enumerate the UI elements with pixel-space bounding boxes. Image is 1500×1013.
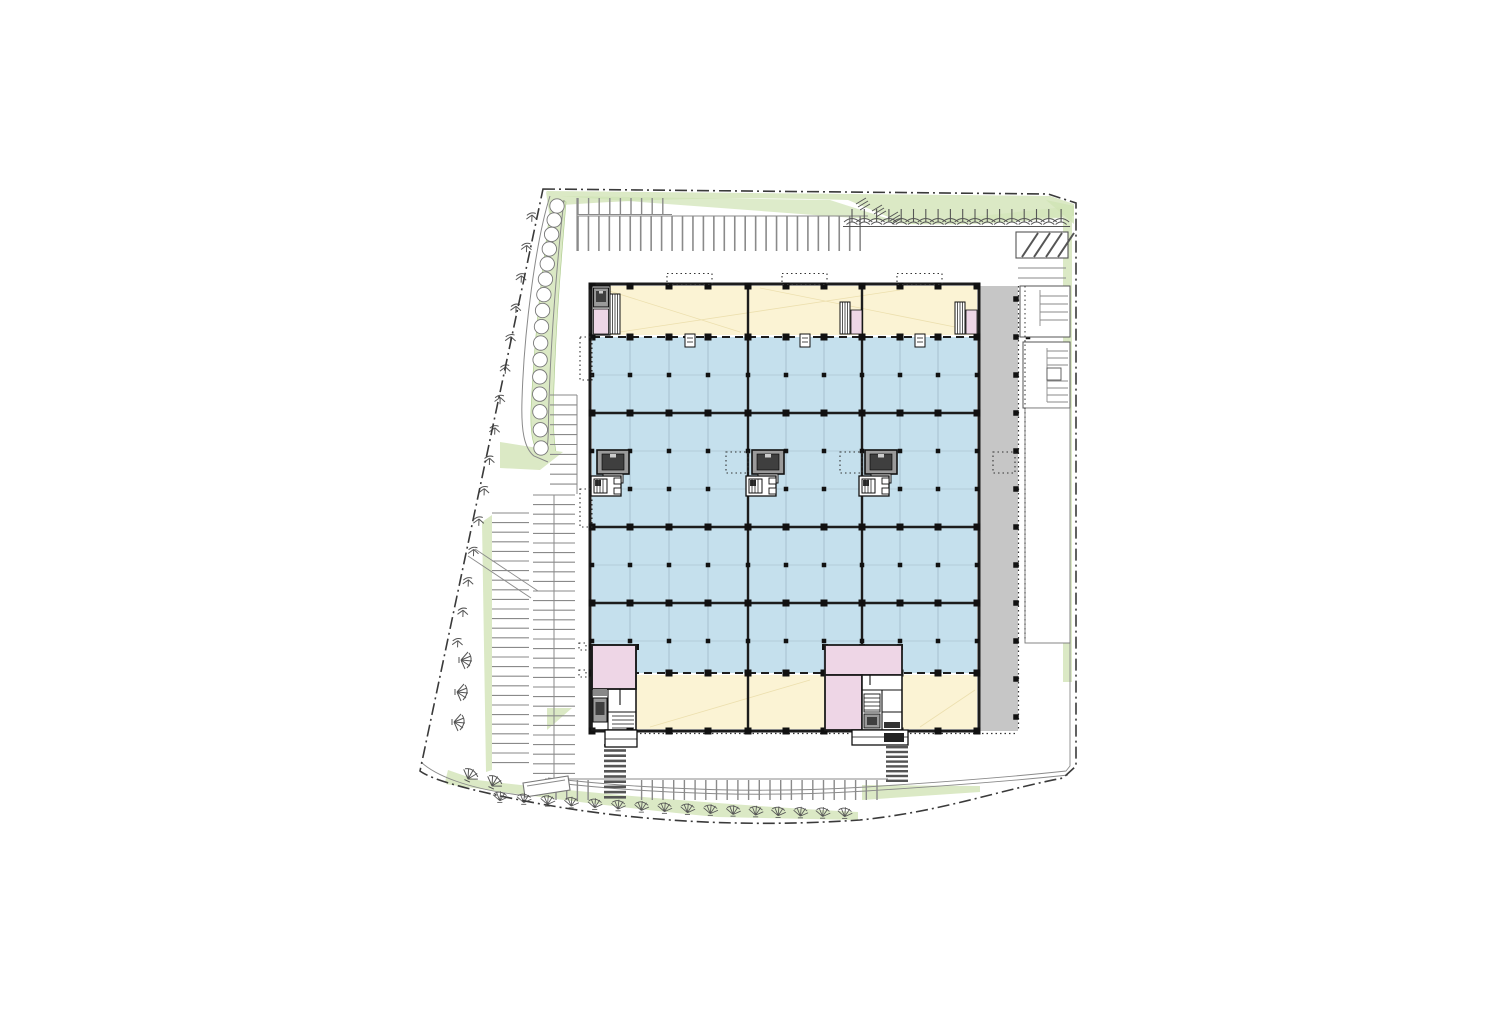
site-plan-page xyxy=(0,0,1500,1013)
core-sw-elev-cab xyxy=(596,702,605,715)
building xyxy=(579,274,1070,748)
east-stair-room-1 xyxy=(1020,286,1070,337)
core-sc-mat xyxy=(884,722,900,728)
crosswalk-west xyxy=(604,744,626,799)
site-plan-canvas xyxy=(0,0,1500,1013)
core-sw-pink xyxy=(592,645,636,689)
core-nw-pink xyxy=(594,309,609,334)
core-sc-elev-cab xyxy=(867,717,877,725)
parking-lines-east xyxy=(1018,268,1066,278)
core-sc-pink-lower xyxy=(825,675,862,730)
green-band-south xyxy=(445,778,858,820)
core-nw-elevator xyxy=(594,288,609,307)
crosswalk-center xyxy=(886,746,908,782)
core-south-center xyxy=(825,645,908,745)
warehouse-hall xyxy=(592,337,977,673)
green-triangle-west-mid xyxy=(547,708,572,730)
core-sc-entrance-mat xyxy=(884,733,904,742)
east-stair-2-landing xyxy=(1047,368,1061,380)
core-sc-pink-upper xyxy=(825,645,902,675)
core-sw-block xyxy=(593,689,607,696)
core-sc-stairbox xyxy=(864,694,880,712)
east-canopy-strip xyxy=(1025,408,1070,643)
office-strip-south xyxy=(636,675,977,729)
east-stair-room-2 xyxy=(1023,342,1070,408)
green-strip-west xyxy=(482,515,492,772)
loading-dock-strip xyxy=(979,286,1018,731)
core-sw-entrance xyxy=(605,730,637,747)
aisle-connector-a xyxy=(468,556,531,598)
east-canopy xyxy=(1020,286,1070,643)
